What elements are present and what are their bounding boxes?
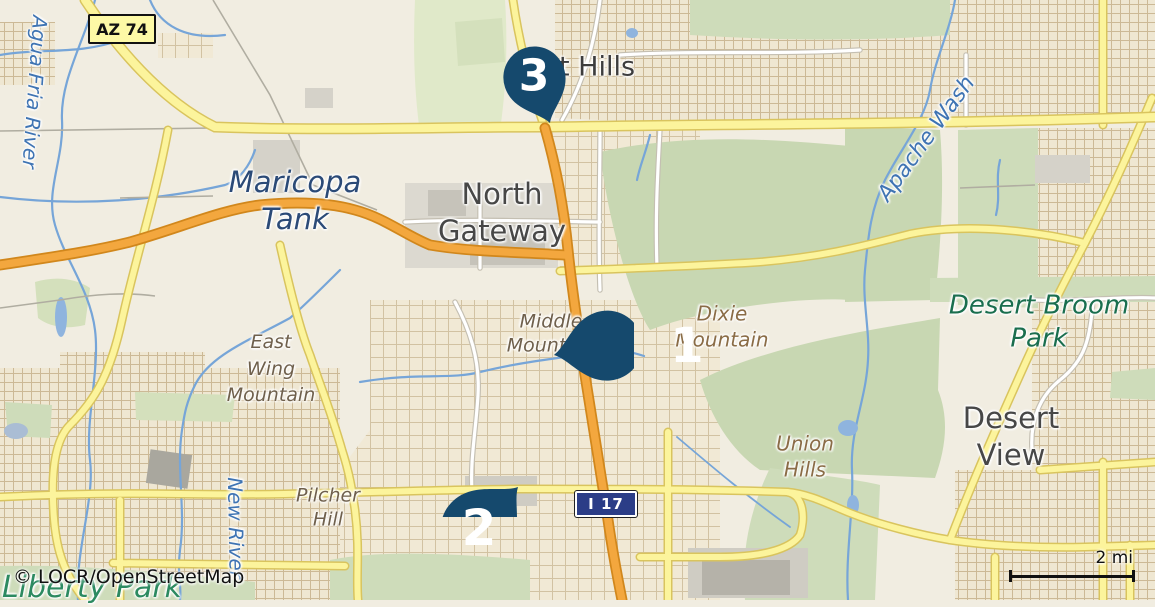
scale-bar-label: 2 mi (1095, 548, 1133, 568)
label-new-river: New River (221, 477, 248, 579)
az74-route-shield: AZ 74 (88, 14, 156, 44)
marker-2-number: 2 (462, 499, 497, 557)
map-marker-3[interactable] (470, 0, 630, 153)
scale-bar (1009, 570, 1135, 582)
label-pilcher-hill: Pilcher Hill (296, 484, 360, 533)
map-marker-2[interactable] (438, 357, 598, 517)
label-union-hills: Union Hills (776, 431, 834, 482)
label-maricopa-tank: Maricopa Tank (229, 164, 362, 238)
marker-3-number: 3 (519, 51, 550, 102)
label-desert-broom-park: Desert Broom Park (949, 290, 1129, 357)
label-east-wing-mountain: East Wing Mountain (227, 329, 316, 409)
marker-1-number: 1 (670, 318, 703, 374)
scale-bar-line (1009, 575, 1135, 578)
scale-bar-tick-right (1132, 570, 1135, 582)
label-desert-view: Desert View (963, 400, 1059, 474)
map-attribution: © LOCR/OpenStreetMap (13, 566, 244, 588)
map-canvas[interactable]: Agua Fria River Maricopa Tank North Gate… (0, 0, 1155, 600)
